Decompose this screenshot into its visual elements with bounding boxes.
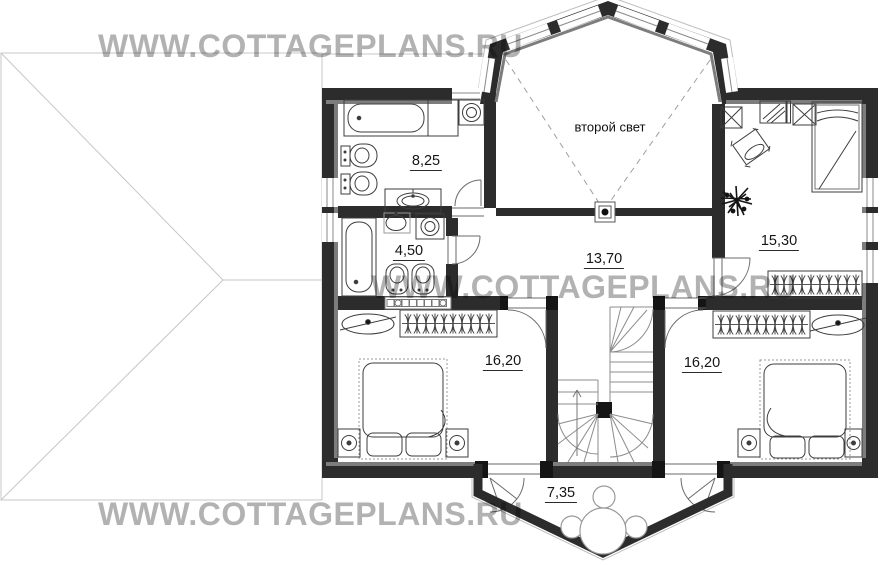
room-area-label-bathroom: 8,25	[410, 153, 442, 171]
room-area-label-bedroom-lower-left: 16,20	[483, 353, 523, 371]
floor-plan-page: второй свет 8,25 4,50 13,70 15,30 16,20 …	[0, 0, 886, 565]
watermark: WWW.COTTAGEPLANS.RU	[98, 497, 523, 532]
room-area-label-bedroom-lower-right: 16,20	[682, 355, 722, 373]
column-icon	[595, 202, 615, 222]
room-area-label-balcony: 7,35	[545, 485, 577, 503]
watermark: WWW.COTTAGEPLANS.RU	[371, 270, 796, 305]
watermark: WWW.COTTAGEPLANS.RU	[98, 29, 523, 64]
room-area-label-bedroom-upper-right: 15,30	[759, 233, 799, 251]
room-area-label-hall: 13,70	[584, 251, 624, 269]
room-area-label-shower-room: 4,50	[393, 243, 425, 261]
second-light-label: второй свет	[574, 120, 645, 135]
